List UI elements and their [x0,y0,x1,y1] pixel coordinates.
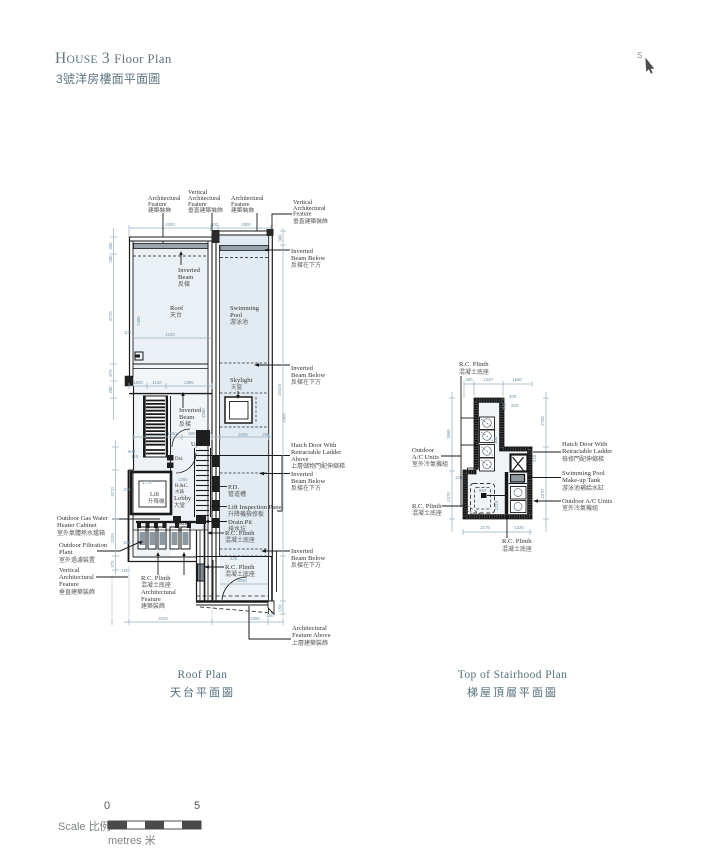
svg-text:Retractable Ladder: Retractable Ladder [291,449,342,456]
svg-text:375: 375 [110,560,115,568]
svg-text:Architectural: Architectural [292,625,327,632]
svg-text:Feature: Feature [148,201,167,208]
svg-text:Inverted: Inverted [291,471,314,478]
svg-text:Beam Below: Beam Below [291,555,325,562]
svg-text:上層建築裝飾: 上層建築裝飾 [292,639,328,647]
svg-text:Inverted: Inverted [179,407,202,414]
svg-text:垂直建築裝飾: 垂直建築裝飾 [188,206,223,214]
svg-text:4250: 4250 [250,616,260,621]
svg-text:1965: 1965 [282,413,287,423]
svg-text:1800: 1800 [133,380,143,385]
svg-text:3170: 3170 [110,487,115,497]
svg-text:Inverted: Inverted [291,248,314,255]
svg-text:P.D.: P.D. [228,484,239,491]
svg-text:大堂: 大堂 [174,501,186,509]
svg-text:Beam Below: Beam Below [291,372,325,379]
svg-text:300: 300 [502,402,507,410]
svg-text:2380: 2380 [184,380,194,385]
svg-text:室外氣體熱水爐箱: 室外氣體熱水爐箱 [57,529,105,537]
svg-text:升降機檢修板: 升降機檢修板 [228,510,264,518]
svg-text:125: 125 [131,454,139,459]
svg-text:Beam Below: Beam Below [291,255,325,262]
svg-text:游泳池: 游泳池 [230,318,248,326]
svg-text:混凝土底座: 混凝土底座 [225,570,255,578]
svg-text:反樑在下方: 反樑在下方 [291,378,321,386]
svg-text:2600: 2600 [238,432,248,437]
svg-text:天窗: 天窗 [231,383,243,391]
svg-text:Lift Inspection Panel: Lift Inspection Panel [228,504,283,511]
svg-text:反樑在下方: 反樑在下方 [291,484,321,492]
svg-text:210: 210 [532,454,537,462]
svg-text:125: 125 [455,475,463,480]
svg-text:混凝土底座: 混凝土底座 [225,536,255,544]
svg-text:1140: 1140 [152,380,162,385]
svg-text:天台: 天台 [170,311,182,319]
svg-text:200: 200 [123,487,131,492]
svg-text:4300: 4300 [165,222,175,227]
svg-text:200: 200 [511,403,519,408]
svg-text:Beam: Beam [179,414,195,421]
svg-text:Hatch Door With: Hatch Door With [562,441,608,448]
svg-text:Inverted: Inverted [178,267,201,274]
svg-text:200: 200 [108,255,113,263]
svg-text:R.C. Plinth: R.C. Plinth [502,538,532,545]
svg-text:游泳池補給水缸: 游泳池補給水缸 [562,484,604,492]
svg-text:Hatch Door With: Hatch Door With [291,442,337,449]
svg-text:排水坑: 排水坑 [228,525,246,533]
svg-text:1775: 1775 [142,480,152,485]
svg-text:6725: 6725 [108,311,113,321]
svg-text:2110: 2110 [494,500,499,510]
svg-text:Inverted: Inverted [291,548,314,555]
svg-text:反樑: 反樑 [178,280,190,288]
svg-text:Make-up Tank: Make-up Tank [562,477,601,484]
svg-text:800: 800 [188,431,196,436]
svg-text:4100: 4100 [165,332,175,337]
svg-text:反樑在下方: 反樑在下方 [291,561,321,569]
svg-text:Outdoor: Outdoor [412,447,435,454]
svg-text:100: 100 [124,330,132,335]
svg-text:Heater Cabinet: Heater Cabinet [57,522,97,529]
svg-text:2800: 2800 [241,222,251,227]
svg-text:Outdoor A/C Units: Outdoor A/C Units [562,498,613,505]
svg-text:1560: 1560 [201,408,206,418]
svg-text:3660: 3660 [446,429,451,439]
svg-text:200: 200 [123,540,131,545]
svg-text:3125: 3125 [110,533,115,543]
svg-text:Feature: Feature [59,581,79,588]
svg-text:Feature Above: Feature Above [292,632,331,639]
svg-text:7400: 7400 [136,316,141,326]
svg-text:混凝土底座: 混凝土底座 [141,581,171,589]
svg-text:19425: 19425 [277,383,282,396]
svg-text:Lift: Lift [150,491,159,498]
svg-text:Outdoor Gas Water: Outdoor Gas Water [57,515,109,522]
svg-text:Skylight: Skylight [230,377,253,384]
svg-text:Drain Pit: Drain Pit [228,519,252,526]
svg-text:Feature: Feature [231,201,250,208]
svg-text:300: 300 [493,436,498,444]
svg-text:Feature: Feature [141,596,161,603]
svg-text:室外冷氣機組: 室外冷氣機組 [412,460,448,468]
svg-text:3100: 3100 [158,616,168,621]
svg-text:1560: 1560 [512,377,522,382]
svg-text:2175: 2175 [480,525,490,530]
svg-text:Pool: Pool [230,312,242,319]
svg-text:Above: Above [291,456,309,463]
svg-text:1560: 1560 [167,431,177,436]
svg-text:Outdoor Filtration: Outdoor Filtration [59,542,108,549]
svg-text:Architectural: Architectural [141,589,176,596]
svg-text:Lobby: Lobby [174,495,192,502]
svg-text:200: 200 [262,432,270,437]
svg-text:Vertical: Vertical [59,567,80,574]
svg-text:水錶: 水錶 [175,488,184,495]
svg-text:425: 425 [230,556,238,561]
svg-text:建築裝飾: 建築裝飾 [231,206,254,214]
svg-text:2370: 2370 [540,489,545,499]
svg-text:875: 875 [108,369,113,377]
svg-text:R.C. Plinth: R.C. Plinth [141,575,171,582]
svg-text:建築裝飾: 建築裝飾 [141,602,165,610]
svg-text:Dra: Dra [175,457,183,462]
svg-text:混凝土底座: 混凝土底座 [412,509,442,517]
svg-text:R.C. Plinth: R.C. Plinth [459,361,489,368]
svg-text:150: 150 [121,568,129,573]
svg-text:400: 400 [108,242,113,250]
svg-text:300: 300 [278,234,283,242]
svg-text:400: 400 [465,377,473,382]
svg-text:反樑在下方: 反樑在下方 [291,261,321,269]
svg-text:Beam: Beam [178,274,194,281]
svg-text:垂直建築裝飾: 垂直建築裝飾 [59,588,95,596]
svg-text:建築裝飾: 建築裝飾 [148,206,171,214]
svg-text:混凝土底座: 混凝土底座 [502,545,532,553]
svg-text:S: S [637,51,642,60]
svg-text:Feature: Feature [293,211,312,218]
svg-text:850: 850 [479,488,487,493]
svg-text:150: 150 [266,613,274,618]
svg-text:升降機: 升降機 [148,497,165,505]
svg-text:Architectural: Architectural [59,574,94,581]
svg-text:垂直建築裝飾: 垂直建築裝飾 [293,217,328,225]
svg-text:Swimming Pool: Swimming Pool [562,470,605,477]
svg-text:1340: 1340 [483,377,493,382]
svg-text:R.C. Plinth: R.C. Plinth [412,503,442,510]
svg-text:2785: 2785 [540,416,545,426]
svg-text:200: 200 [108,386,113,394]
svg-text:Swimming: Swimming [230,305,260,312]
svg-text:A/C Units: A/C Units [412,454,439,461]
svg-text:Retractable Ladder: Retractable Ladder [562,448,613,455]
svg-text:1325: 1325 [514,525,524,530]
svg-text:Plant: Plant [59,549,73,556]
svg-text:檢修門配伸縮梯: 檢修門配伸縮梯 [562,455,604,463]
svg-text:1350: 1350 [178,477,188,482]
svg-text:反樑: 反樑 [179,420,191,428]
svg-text:R.C. Plinth: R.C. Plinth [225,564,255,571]
svg-text:150: 150 [278,604,283,612]
svg-text:室外冷氣機組: 室外冷氣機組 [562,504,598,512]
svg-text:3000: 3000 [237,578,247,583]
svg-text:Inverted: Inverted [291,365,314,372]
svg-text:室外過濾裝置: 室外過濾裝置 [59,556,95,564]
svg-text:上層儲物門配伸縮梯: 上層儲物門配伸縮梯 [291,462,345,470]
svg-text:Beam Below: Beam Below [291,478,325,485]
svg-text:混凝土底座: 混凝土底座 [459,368,489,376]
svg-text:Roof: Roof [170,305,184,312]
svg-text:2370: 2370 [446,492,451,502]
svg-text:Feature: Feature [188,201,207,208]
svg-text:管道槽: 管道槽 [228,490,246,498]
svg-text:200: 200 [509,394,517,399]
